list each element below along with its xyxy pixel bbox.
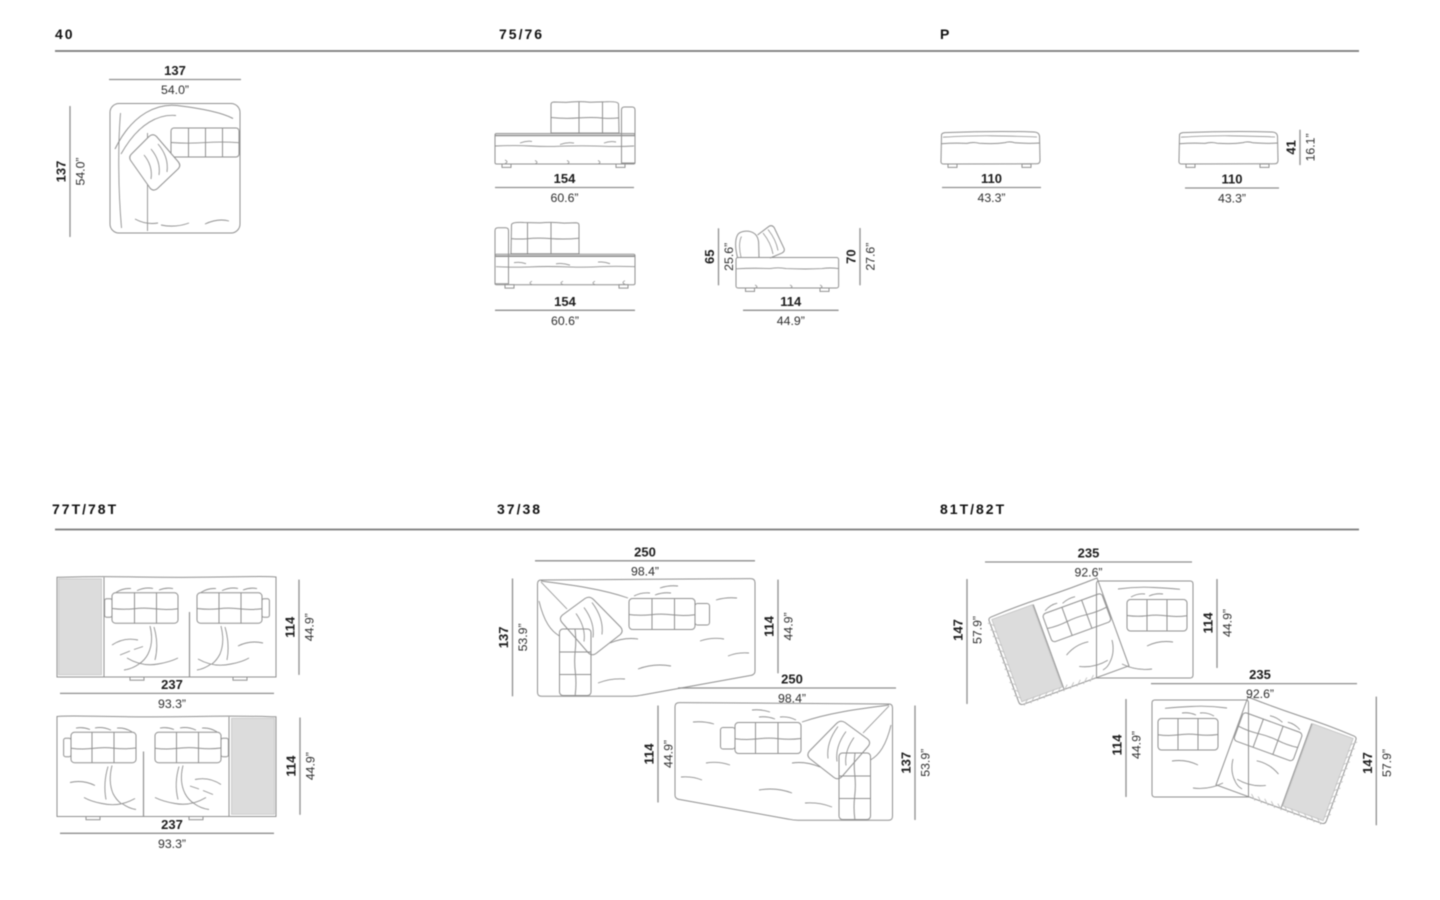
- svg-text:40: 40: [55, 26, 75, 42]
- svg-text:93.3”: 93.3”: [158, 837, 186, 851]
- svg-text:16.1”: 16.1”: [1304, 133, 1318, 161]
- svg-text:65: 65: [702, 250, 717, 264]
- svg-text:44.9”: 44.9”: [303, 613, 317, 641]
- svg-text:250: 250: [634, 544, 656, 559]
- svg-text:75/76: 75/76: [499, 26, 544, 42]
- svg-text:P: P: [940, 26, 951, 42]
- svg-text:43.3”: 43.3”: [977, 191, 1005, 205]
- svg-text:60.6”: 60.6”: [551, 314, 579, 328]
- svg-text:114: 114: [1110, 734, 1125, 756]
- svg-text:154: 154: [554, 294, 576, 309]
- svg-text:110: 110: [1222, 172, 1243, 187]
- svg-text:37/38: 37/38: [497, 501, 542, 517]
- svg-text:25.6”: 25.6”: [722, 243, 736, 271]
- svg-text:43.3”: 43.3”: [1218, 192, 1246, 206]
- svg-text:57.9”: 57.9”: [1380, 749, 1394, 777]
- svg-text:81T/82T: 81T/82T: [940, 501, 1006, 517]
- svg-text:110: 110: [981, 171, 1002, 186]
- svg-text:137: 137: [496, 627, 511, 649]
- svg-text:235: 235: [1078, 546, 1100, 561]
- svg-text:60.6”: 60.6”: [550, 191, 578, 205]
- svg-text:77T/78T: 77T/78T: [52, 501, 118, 517]
- svg-text:44.9”: 44.9”: [782, 612, 796, 640]
- svg-text:154: 154: [554, 171, 576, 186]
- svg-text:237: 237: [161, 677, 183, 692]
- svg-text:137: 137: [164, 63, 186, 78]
- svg-text:54.0”: 54.0”: [161, 83, 189, 97]
- svg-text:93.3”: 93.3”: [158, 697, 186, 711]
- svg-text:44.9”: 44.9”: [1221, 609, 1235, 637]
- svg-text:98.4”: 98.4”: [631, 564, 659, 578]
- svg-text:114: 114: [780, 294, 802, 309]
- svg-text:54.0”: 54.0”: [74, 157, 88, 185]
- svg-text:137: 137: [899, 752, 914, 774]
- svg-text:27.6”: 27.6”: [864, 243, 878, 271]
- svg-text:92.6”: 92.6”: [1074, 566, 1102, 580]
- svg-text:114: 114: [762, 615, 777, 637]
- svg-text:57.9”: 57.9”: [971, 616, 985, 644]
- svg-text:44.9”: 44.9”: [777, 314, 805, 328]
- svg-text:250: 250: [781, 672, 803, 687]
- svg-text:237: 237: [161, 817, 183, 832]
- svg-text:114: 114: [284, 755, 299, 777]
- svg-text:44.9”: 44.9”: [1130, 731, 1144, 759]
- svg-text:41: 41: [1284, 140, 1299, 154]
- svg-text:44.9”: 44.9”: [304, 752, 318, 780]
- svg-text:235: 235: [1249, 667, 1271, 682]
- svg-text:114: 114: [1201, 612, 1216, 634]
- svg-text:53.9”: 53.9”: [919, 749, 933, 777]
- svg-text:44.9”: 44.9”: [662, 740, 676, 768]
- svg-text:147: 147: [951, 619, 966, 641]
- svg-text:147: 147: [1360, 752, 1375, 774]
- svg-text:92.6”: 92.6”: [1246, 687, 1274, 701]
- svg-text:53.9”: 53.9”: [516, 623, 530, 651]
- svg-text:137: 137: [54, 161, 69, 183]
- svg-text:98.4”: 98.4”: [778, 692, 806, 706]
- svg-text:114: 114: [642, 743, 657, 765]
- svg-text:70: 70: [844, 249, 859, 263]
- svg-text:114: 114: [283, 616, 298, 638]
